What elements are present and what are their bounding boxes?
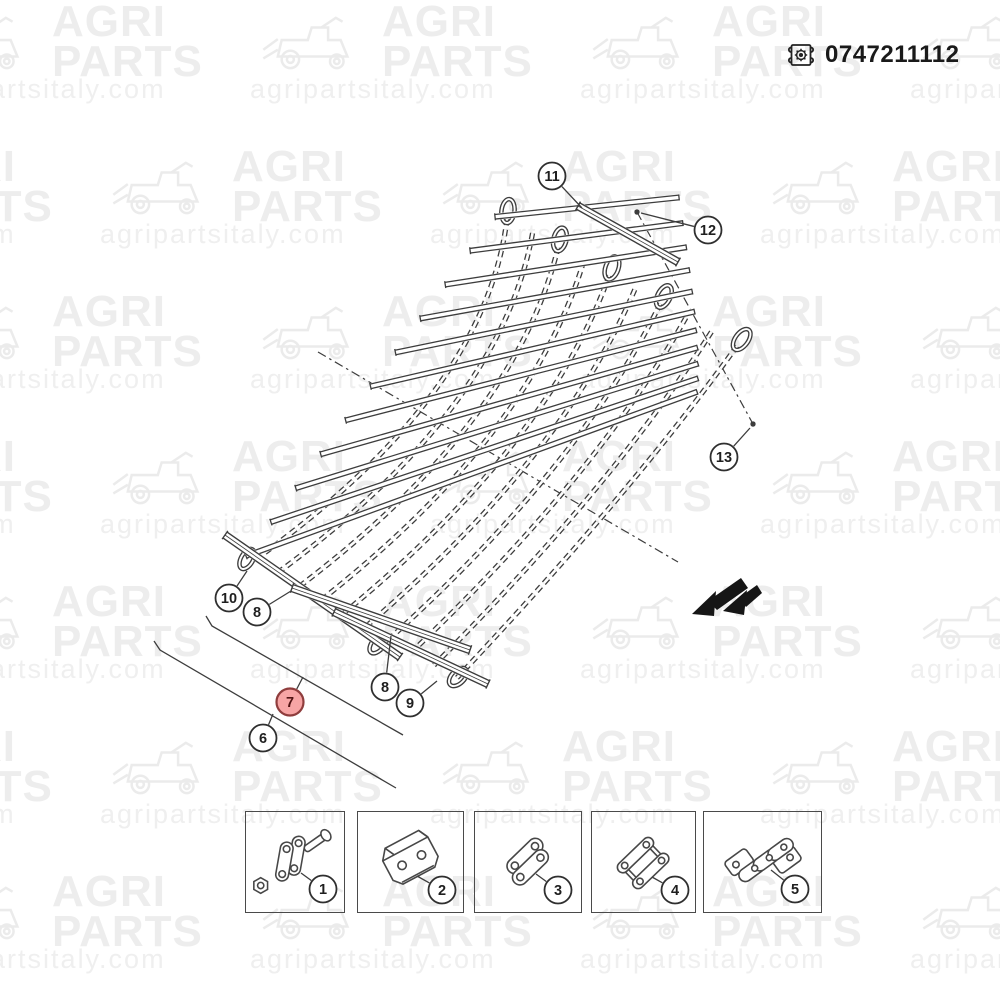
callout-number: 3	[554, 883, 562, 899]
assembly-line-6	[154, 641, 396, 788]
callout-number: 8	[381, 680, 389, 696]
leader-line	[536, 874, 546, 881]
leader-line	[421, 681, 437, 694]
leader-line	[269, 714, 273, 725]
callout-2[interactable]: 2	[417, 876, 456, 904]
blueprint-scroll-gear-icon	[784, 38, 818, 72]
part-number: 0747211112	[825, 41, 960, 69]
leader-line	[301, 873, 311, 880]
leader-line	[734, 428, 750, 446]
direction-arrow-icon	[692, 578, 762, 616]
leader-line	[269, 591, 291, 604]
callout-7[interactable]: 7	[277, 677, 304, 716]
callout-9[interactable]: 9	[397, 681, 438, 717]
catalog-page: AGRIPARTSagripartsitaly.comAGRIPARTSagri…	[0, 0, 1000, 1000]
callout-number: 5	[791, 882, 799, 898]
callout-10[interactable]: 10	[216, 571, 248, 612]
leader-line	[771, 870, 784, 880]
callout-11[interactable]: 11	[539, 163, 583, 209]
callout-number: 6	[259, 731, 267, 747]
leader-line	[417, 876, 429, 883]
callout-1[interactable]: 1	[301, 873, 337, 903]
callout-number: 13	[716, 450, 732, 466]
callout-number: 8	[253, 605, 261, 621]
callout-number: 10	[221, 591, 237, 607]
callout-number: 7	[286, 695, 294, 711]
leader-dot	[634, 209, 639, 214]
callout-number: 2	[438, 883, 446, 899]
leader-line	[652, 877, 662, 883]
callout-8-left[interactable]: 8	[244, 591, 292, 626]
part-number-header: 0747211112	[784, 38, 960, 72]
leader-line	[297, 677, 303, 689]
callout-6[interactable]: 6	[250, 714, 277, 752]
web-rods	[245, 194, 699, 559]
callout-5[interactable]: 5	[771, 870, 809, 903]
gear-icon	[795, 49, 807, 61]
callout-3[interactable]: 3	[536, 874, 572, 904]
callout-4[interactable]: 4	[652, 877, 689, 904]
callout-number: 4	[671, 883, 679, 899]
callout-13[interactable]: 13	[711, 421, 756, 470]
leader-dot	[750, 421, 755, 426]
callout-number: 12	[700, 223, 716, 239]
callout-number: 9	[406, 696, 414, 712]
callout-number: 11	[544, 169, 559, 185]
leader-line	[562, 187, 582, 208]
leader-line	[237, 571, 247, 586]
exploded-web-diagram: 111213108768912345	[0, 0, 1000, 1000]
callout-number: 1	[319, 882, 327, 898]
